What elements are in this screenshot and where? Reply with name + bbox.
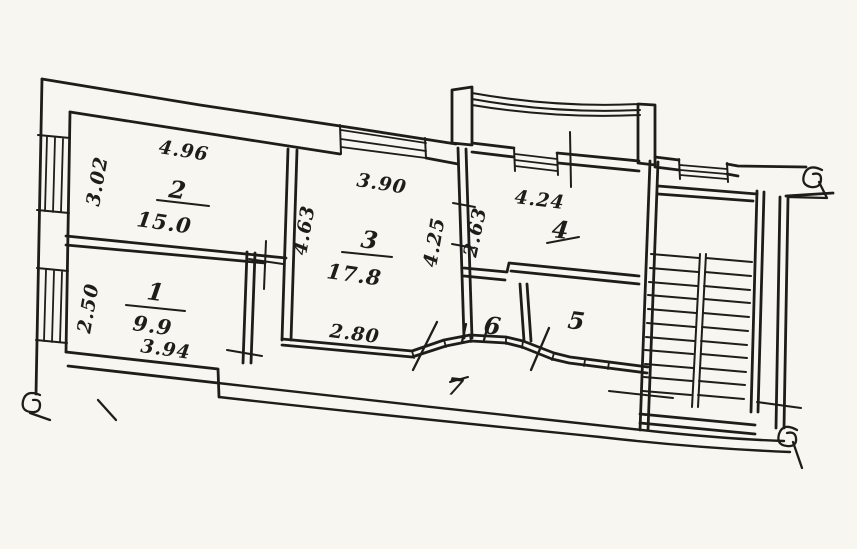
break-curl-bottom-left [23,393,116,420]
room2-number: 2 [166,174,189,205]
break-curl-bottom-right [778,427,802,468]
left-window-1-hatch [45,137,63,212]
room4-top-wall [472,143,639,171]
corridor-diagonal-ticks [413,322,549,370]
room6-number: 6 [482,310,503,341]
room7-number: 7 [445,371,466,402]
outer-walls [36,79,790,452]
dim-room4-width-top: 4.24 [513,186,566,214]
room4-bottom-wall [464,263,639,284]
balcony-bay [452,87,806,176]
stair-top-wall [658,186,757,201]
right-outer-wall [776,193,833,428]
top-right-wall [655,157,806,176]
bottom-wall-left [66,352,219,397]
dim-room2-width: 4.96 [157,136,210,166]
tick-stair-right-wall [757,402,801,408]
stair-stringer [692,254,706,407]
stair-steps-right-flight [698,258,752,399]
floor-plan-page: 2 15.0 1 9.9 3 17.8 4 5 6 7 4.96 3.02 2.… [0,0,857,549]
dim-room1-width: 3.94 [139,335,192,364]
bay-right-pillar [638,104,655,165]
room4-number: 4 [550,214,571,245]
dim-room1-height: 2.50 [73,282,104,336]
top-wall-inner-edge [70,112,458,164]
dim-room2-height: 3.02 [82,155,112,208]
room4-top-window-hatch [515,154,557,171]
dim-room4-height-left: 2.63 [459,205,491,260]
room-label-underlines [126,200,579,382]
left-window-2-hatch [44,270,62,342]
stair-right-wall [751,191,764,412]
room3-area: 17.8 [325,258,383,290]
staircase [640,161,833,434]
room1-right-wall [243,252,255,363]
room1-number: 1 [145,276,167,307]
dim-room3-width-top: 3.90 [355,169,408,199]
bay-left-pillar [452,87,472,145]
top-right-window-hatch [680,165,727,179]
room5-number: 5 [566,305,587,336]
room2-area: 15.0 [135,206,193,238]
top-wall-outer-edge [42,79,456,144]
floor-plan-drawing: 2 15.0 1 9.9 3 17.8 4 5 6 7 4.96 3.02 2.… [0,0,857,549]
bottom-boundary-sweep [218,383,790,452]
dim-room3-height-right: 4.25 [419,216,449,269]
bay-front-glazing [472,93,640,116]
room6-right-wall [520,284,531,341]
room3-number: 3 [359,224,381,255]
room3-top-window-hatch [341,130,426,158]
axis-line-room4-window [570,132,571,187]
